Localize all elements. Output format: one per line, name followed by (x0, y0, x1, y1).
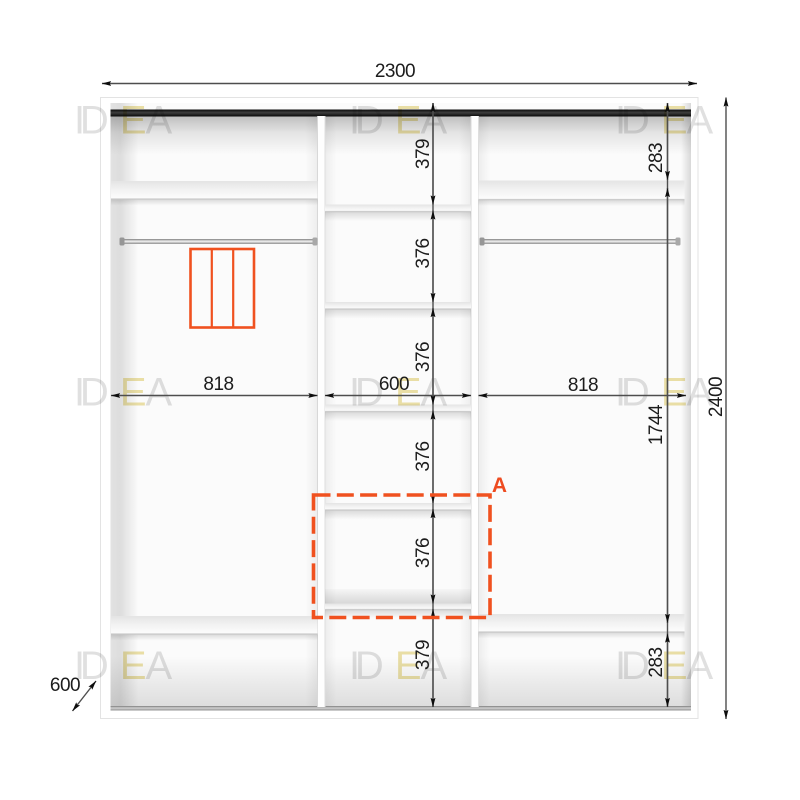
svg-text:2300: 2300 (375, 61, 415, 82)
svg-text:818: 818 (568, 375, 598, 396)
svg-text:376: 376 (413, 538, 434, 568)
svg-text:283: 283 (646, 143, 667, 173)
svg-text:IDEA: IDEA (74, 371, 173, 415)
svg-text:283: 283 (646, 647, 667, 677)
svg-text:600: 600 (50, 675, 80, 696)
svg-text:376: 376 (413, 342, 434, 372)
svg-text:A: A (492, 474, 507, 497)
svg-text:600: 600 (379, 374, 409, 395)
svg-text:376: 376 (413, 238, 434, 268)
svg-text:IDEA: IDEA (615, 99, 714, 143)
svg-text:IDEA: IDEA (74, 99, 173, 143)
svg-text:1744: 1744 (646, 404, 667, 445)
svg-text:818: 818 (203, 374, 233, 395)
svg-text:376: 376 (413, 441, 434, 471)
svg-text:379: 379 (413, 640, 434, 670)
svg-text:IDEA: IDEA (74, 644, 173, 688)
svg-text:379: 379 (413, 139, 434, 169)
svg-text:2400: 2400 (706, 377, 727, 417)
